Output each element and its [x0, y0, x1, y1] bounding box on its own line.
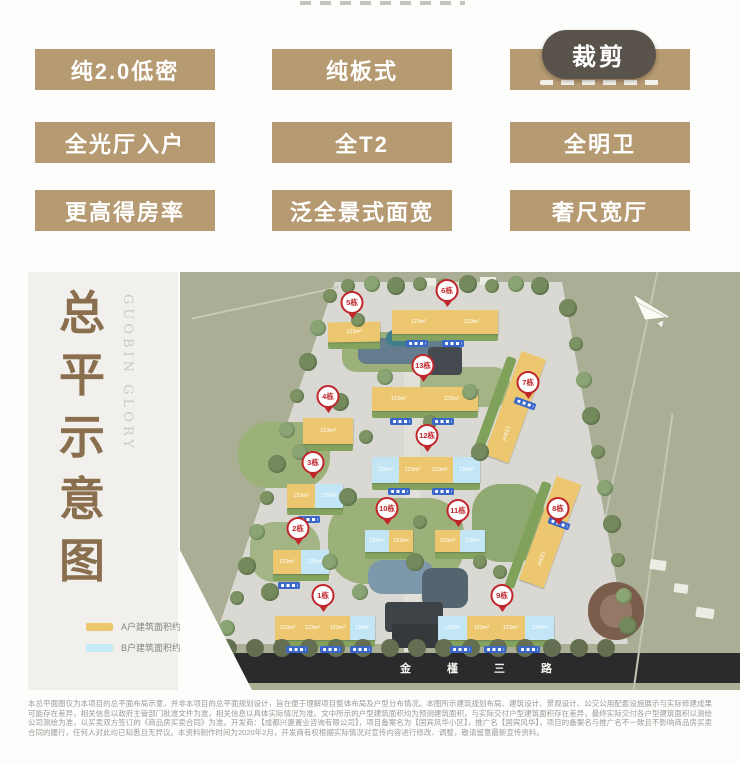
building-pin: 4栋 [317, 385, 340, 418]
tree-icon [531, 277, 549, 295]
cropped-top-text [300, 1, 465, 5]
pin-label: 11栋 [447, 499, 470, 522]
building-block: 139m²123m² [365, 530, 413, 552]
tree-icon [559, 299, 577, 317]
title-char: 意 [59, 476, 105, 522]
tree-icon [508, 276, 524, 292]
building-segment: 123m² [435, 530, 460, 552]
building-segment: 123m² [399, 457, 426, 483]
building-segment: 123m² [426, 457, 453, 483]
tree-icon [290, 389, 304, 403]
tree-icon [381, 639, 399, 657]
building-pin: 11栋 [447, 499, 470, 532]
building-block: 123m²139m² [435, 530, 485, 552]
building-pin: 2栋 [287, 517, 310, 550]
pin-label: 13栋 [412, 354, 435, 377]
building-block: 123m² [303, 418, 353, 444]
building-segment: 123m² [445, 310, 498, 334]
tree-icon [322, 554, 338, 570]
street-road [208, 653, 740, 683]
building-pin: 10栋 [376, 497, 399, 530]
unit-sign [278, 582, 300, 589]
building-segment: 123m² [496, 616, 525, 640]
tree-icon [408, 639, 426, 657]
pin-tail [323, 406, 333, 418]
tree-icon [493, 565, 507, 579]
street-name: 三 [494, 660, 505, 676]
landscape-patch [191, 286, 338, 319]
pin-tail [308, 472, 318, 484]
unit-sign [350, 646, 372, 653]
pin-tail [382, 518, 392, 530]
crop-button[interactable]: 裁剪 [542, 30, 656, 79]
tree-icon [485, 279, 499, 293]
building-segment: 139m² [365, 530, 389, 552]
unit-sign [390, 418, 412, 425]
unit-sign [406, 340, 428, 347]
tree-icon [310, 320, 326, 336]
unit-sign [320, 646, 342, 653]
building-pin: 13栋 [412, 354, 435, 387]
street-name: 金 [400, 660, 411, 676]
pin-tail [523, 392, 533, 404]
tree-icon [543, 639, 561, 657]
page-title: 总平示意图 [52, 290, 112, 584]
building-block: 139m²123m²123m²139m² [438, 616, 554, 640]
building-segment: 139m² [453, 457, 480, 483]
building-segment: 123m² [389, 530, 413, 552]
page-subtitle: GUOBIN GLORY [120, 294, 135, 764]
street-name: 路 [541, 660, 552, 676]
pin-tail [293, 538, 303, 550]
pin-label: 4栋 [317, 385, 340, 408]
tree-icon [569, 337, 583, 351]
pin-tail [418, 375, 428, 387]
pin-label: 8栋 [547, 497, 570, 520]
tree-icon [619, 617, 637, 635]
feature-badge: 更高得房率 [35, 190, 215, 231]
building-pin: 3栋 [302, 451, 325, 484]
building-pin: 8栋 [547, 497, 570, 530]
building-pin: 1栋 [312, 584, 335, 617]
pin-label: 6栋 [436, 279, 459, 302]
tree-icon [377, 369, 393, 385]
disclaimer-text: 本总平面图仅为本项目的总平面布局示意，并非本项目的总平面规划设计，旨在便于理解项… [28, 699, 712, 737]
building-pin: 9栋 [491, 584, 514, 617]
feature-badge: 纯板式 [272, 49, 452, 90]
pin-label: 10栋 [376, 497, 399, 520]
feature-badge: 全T2 [272, 122, 452, 163]
building-pin: 12栋 [416, 424, 439, 457]
compass-icon [630, 292, 676, 334]
tree-icon [238, 557, 256, 575]
landscape-patch [673, 583, 688, 594]
tree-icon [597, 480, 613, 496]
feature-badge: 全光厅入户 [35, 122, 215, 163]
building-pin: 7栋 [517, 371, 540, 404]
tree-icon [616, 588, 632, 604]
building-segment: 123m² [325, 616, 350, 640]
pin-tail [497, 605, 507, 617]
building-block: 123m²139m² [273, 550, 329, 574]
building-segment: 123m² [275, 616, 300, 640]
landscape-patch [695, 607, 714, 619]
landscape-patch [633, 413, 674, 690]
unit-sign [484, 646, 506, 653]
unit-sign [432, 488, 454, 495]
unit-sign [388, 488, 410, 495]
tree-icon [260, 491, 274, 505]
building-segment: 123m² [287, 484, 315, 508]
tree-icon [364, 276, 380, 292]
tree-icon [413, 515, 427, 529]
building-segment: 139m² [372, 457, 399, 483]
pin-label: 2栋 [287, 517, 310, 540]
pin-tail [442, 300, 452, 312]
pin-label: 9栋 [491, 584, 514, 607]
building-segment: 139m² [460, 530, 485, 552]
tree-icon [471, 443, 489, 461]
tree-icon [299, 353, 317, 371]
unit-sign [450, 646, 472, 653]
tree-icon [339, 488, 357, 506]
feature-badge: 泛全景式面宽 [272, 190, 452, 231]
pin-tail [318, 605, 328, 617]
building-segment: 123m² [467, 616, 496, 640]
title-char: 图 [59, 538, 105, 584]
tree-icon [576, 372, 592, 388]
siteplan-map: 123m²123m²123m²123m²123m²123m²123m²123m²… [180, 272, 740, 690]
building-block: 123m²139m² [287, 484, 343, 508]
feature-badge: 纯2.0低密 [35, 49, 215, 90]
tree-icon [323, 289, 337, 303]
building-segment: 123m² [303, 418, 353, 444]
tree-icon [582, 407, 600, 425]
tree-icon [219, 639, 237, 657]
tree-icon [219, 620, 235, 636]
building-segment: 123m² [300, 616, 325, 640]
landscape-patch [649, 559, 666, 571]
building-pin: 6栋 [436, 279, 459, 312]
pin-label: 1栋 [312, 584, 335, 607]
tree-icon [406, 553, 424, 571]
title-char: 平 [59, 352, 105, 398]
tree-icon [230, 591, 244, 605]
tree-icon [462, 384, 478, 400]
pin-label: 12栋 [416, 424, 439, 447]
building-pin: 5栋 [341, 291, 364, 324]
pin-label: 5栋 [341, 291, 364, 314]
building-segment: 123m² [273, 550, 301, 574]
tree-icon [261, 583, 279, 601]
pin-tail [553, 518, 563, 530]
building-block: 123m²123m² [392, 310, 498, 334]
tree-icon [473, 555, 487, 569]
tree-icon [279, 422, 295, 438]
title-char: 示 [59, 414, 105, 460]
tree-icon [459, 275, 477, 293]
tree-icon [591, 445, 605, 459]
legend-swatch [86, 644, 113, 652]
tree-icon [268, 455, 286, 473]
building-segment: 139m² [525, 616, 554, 640]
tree-icon [387, 277, 405, 295]
building-segment: 139m² [438, 616, 467, 640]
feature-badge: 奢尺宽厅 [510, 190, 690, 231]
title-char: 总 [59, 290, 105, 336]
tree-icon [597, 639, 615, 657]
building-block: 123m²123m²123m²139m² [275, 616, 375, 640]
tree-icon [413, 277, 427, 291]
building-block: 139m²123m²123m²139m² [372, 457, 480, 483]
unit-sign [442, 340, 464, 347]
legend-swatch [86, 623, 113, 631]
unit-sign [286, 646, 308, 653]
tree-icon [352, 584, 368, 600]
pin-tail [422, 445, 432, 457]
tree-icon [246, 639, 264, 657]
tree-icon [359, 430, 373, 444]
pin-label: 3栋 [302, 451, 325, 474]
tree-icon [570, 639, 588, 657]
pin-tail [347, 312, 357, 324]
building-segment: 139m² [350, 616, 375, 640]
tree-icon [611, 553, 625, 567]
building-segment: 123m² [392, 310, 445, 334]
building-segment: 123m² [372, 387, 425, 411]
pin-tail [453, 520, 463, 532]
street-name: 槿 [447, 660, 458, 676]
unit-sign [518, 646, 540, 653]
pin-label: 7栋 [517, 371, 540, 394]
tree-icon [249, 524, 265, 540]
tree-icon [603, 515, 621, 533]
siteplan-title-panel: 总平示意图 GUOBIN GLORY A户建筑面积约123m²B户建筑面积约13… [28, 272, 178, 690]
feature-badge: 全明卫 [510, 122, 690, 163]
